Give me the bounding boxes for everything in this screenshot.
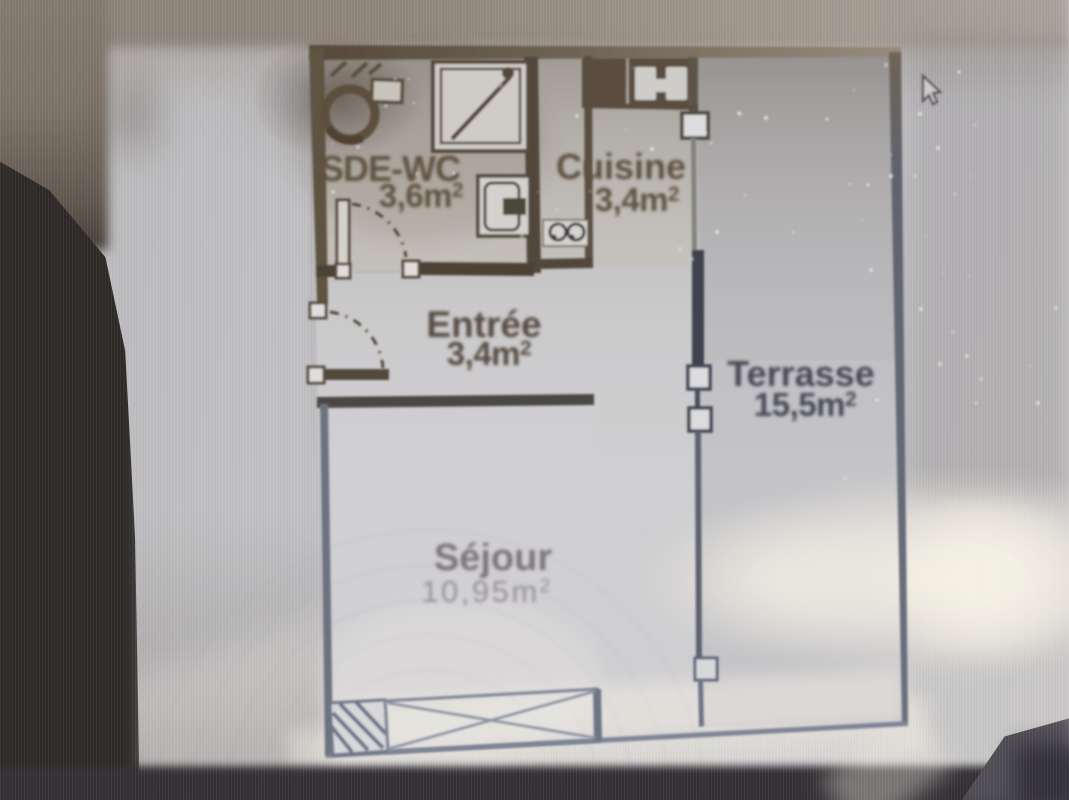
svg-text:10,95m2: 10,95m2 xyxy=(421,574,552,609)
svg-text:3,4m2: 3,4m2 xyxy=(447,335,531,372)
svg-text:Séjour: Séjour xyxy=(434,537,552,579)
svg-text:15,5m2: 15,5m2 xyxy=(754,386,856,423)
svg-text:3,6m2: 3,6m2 xyxy=(379,177,463,214)
svg-text:3,4m2: 3,4m2 xyxy=(595,181,679,218)
